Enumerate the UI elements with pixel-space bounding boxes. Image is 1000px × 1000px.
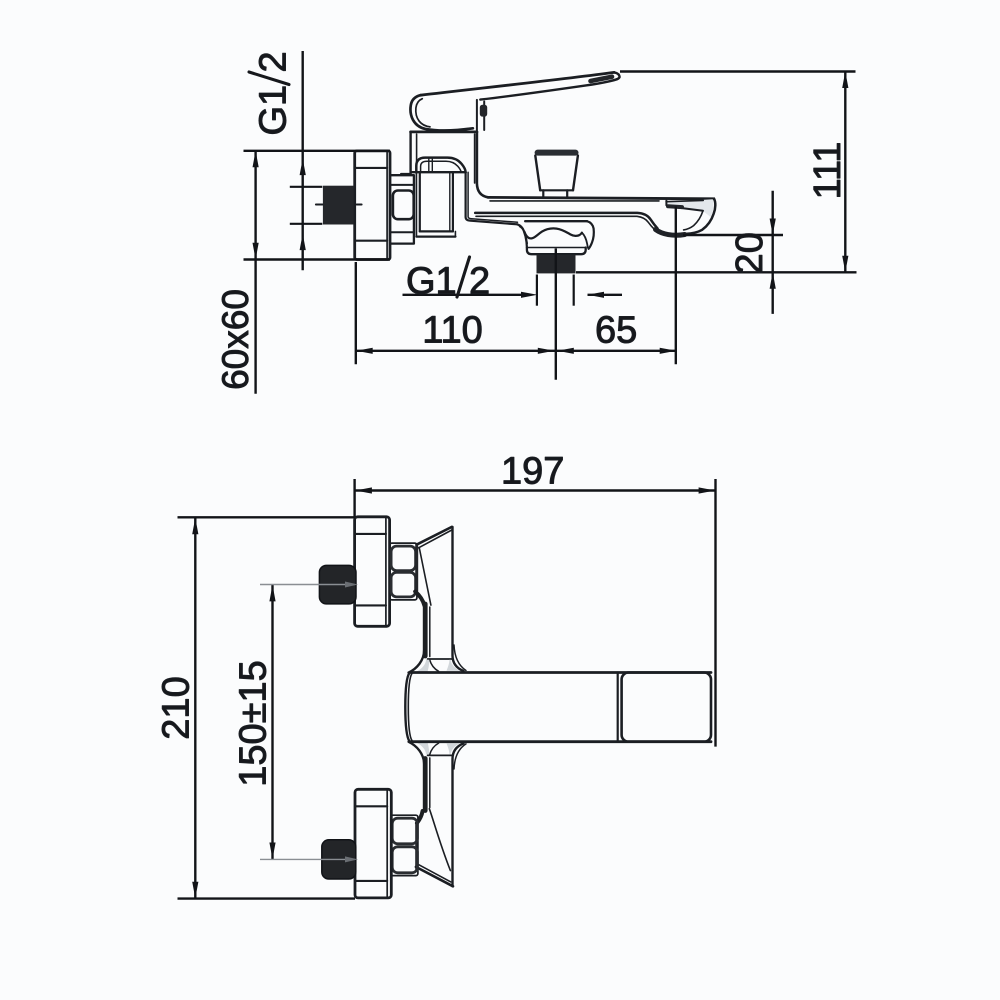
svg-text:G1: G1 [253,85,295,136]
svg-text:110: 110 [422,310,483,352]
svg-text:2: 2 [469,261,490,303]
svg-text:210: 210 [156,676,198,739]
svg-text:65: 65 [595,310,637,352]
svg-text:G1: G1 [406,261,457,303]
svg-text:60x60: 60x60 [215,289,256,390]
svg-text:197: 197 [501,451,564,493]
svg-text:20: 20 [729,232,771,274]
svg-text:2: 2 [253,51,295,72]
svg-text:111: 111 [807,142,849,200]
svg-text:150±15: 150±15 [233,660,275,787]
